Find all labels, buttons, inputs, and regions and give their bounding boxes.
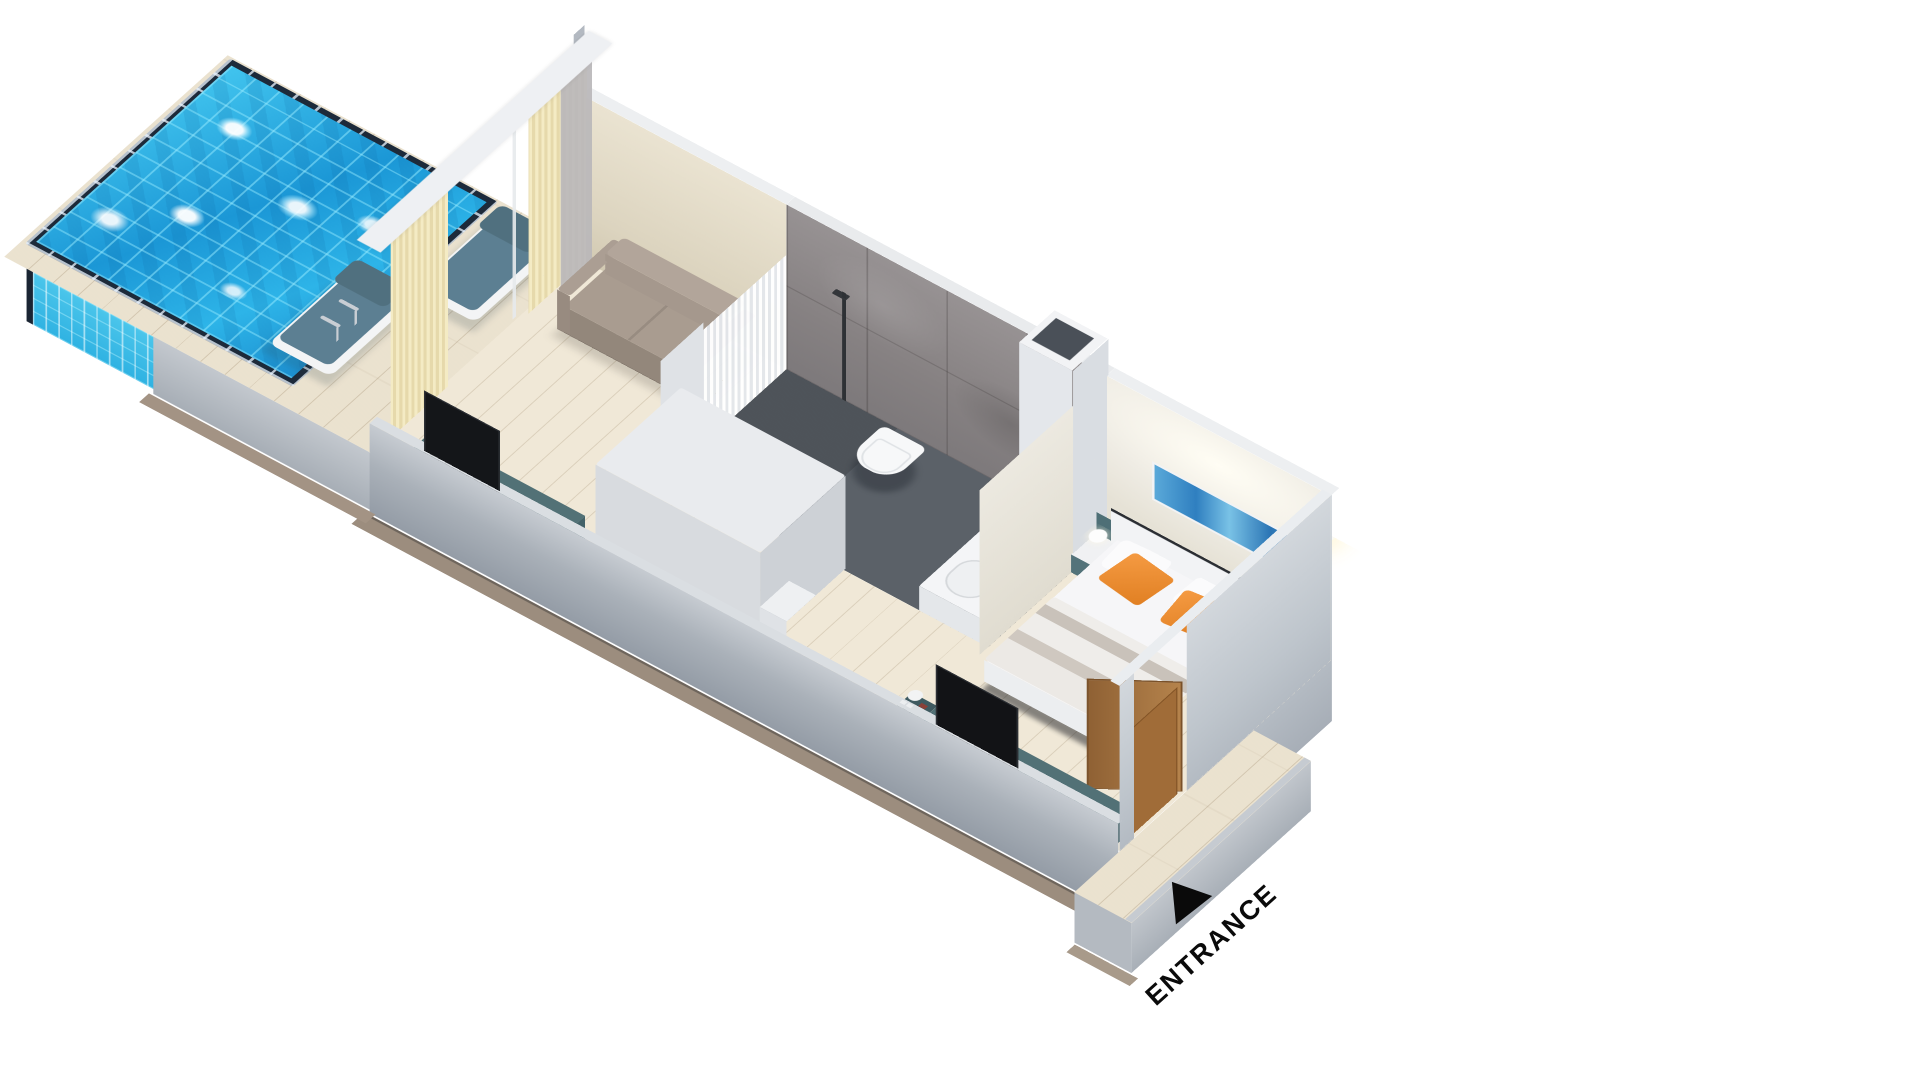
sheer-curtain: [561, 54, 593, 295]
floorplan-render-canvas: { "entrance": { "label": "ENTRANCE" }, "…: [0, 0, 1920, 1080]
glass-door-post: [512, 101, 516, 320]
duct-opening: [1032, 318, 1094, 360]
shower-column: [842, 291, 846, 401]
